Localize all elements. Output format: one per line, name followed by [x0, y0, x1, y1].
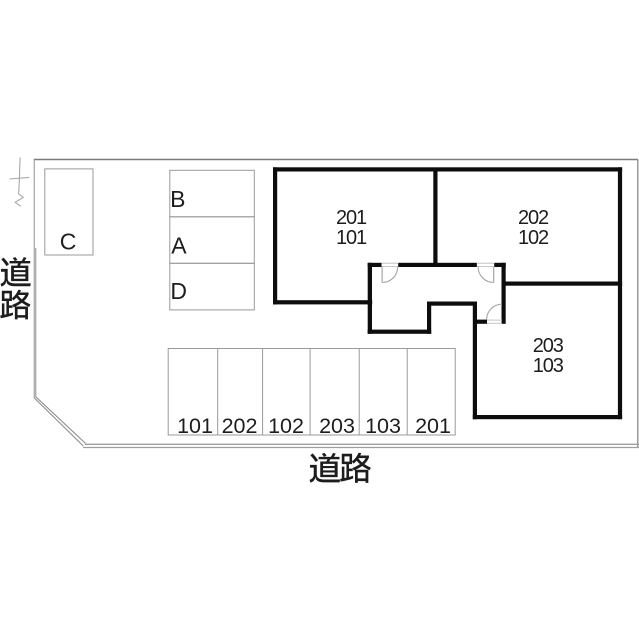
svg-text:103: 103 — [365, 414, 401, 438]
svg-text:203: 203 — [533, 335, 564, 357]
svg-text:B: B — [170, 186, 185, 212]
svg-text:A: A — [171, 233, 187, 259]
svg-text:103: 103 — [533, 355, 564, 377]
svg-text:101: 101 — [336, 227, 367, 249]
svg-text:203: 203 — [319, 414, 355, 438]
svg-text:202: 202 — [518, 207, 549, 229]
svg-text:102: 102 — [268, 414, 304, 438]
svg-text:D: D — [170, 278, 187, 304]
svg-text:C: C — [60, 229, 77, 255]
svg-text:101: 101 — [177, 414, 213, 438]
svg-text:201: 201 — [336, 207, 367, 229]
svg-text:201: 201 — [415, 414, 451, 438]
svg-text:202: 202 — [222, 414, 258, 438]
svg-text:102: 102 — [518, 227, 549, 249]
